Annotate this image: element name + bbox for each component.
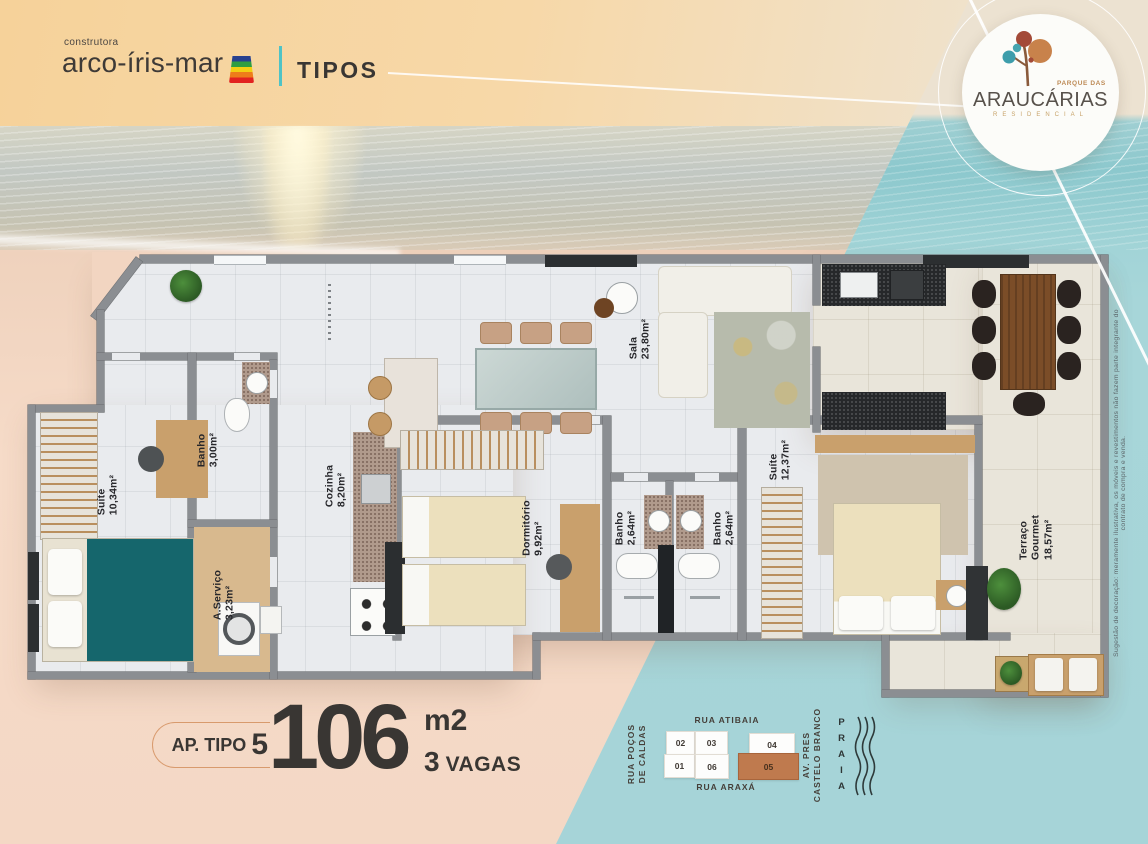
wall: [188, 520, 277, 527]
turntable: [946, 585, 968, 607]
room-area: 9,92m²: [533, 500, 545, 556]
door-opening: [112, 353, 140, 360]
door-opening: [624, 473, 648, 481]
laundry-sink: [260, 606, 282, 634]
room-name: Banho: [196, 433, 208, 467]
room-name: Suíte: [96, 475, 108, 516]
plant: [1000, 661, 1022, 685]
room-name: A.Serviço: [212, 570, 224, 620]
chair: [480, 322, 512, 344]
unit-area-unit: m2: [424, 704, 467, 738]
room-area: 3,23m²: [224, 570, 236, 620]
chair: [972, 316, 996, 344]
chair: [1013, 392, 1045, 416]
chair: [972, 280, 996, 308]
closet: [40, 412, 98, 540]
towel-bar: [690, 596, 720, 599]
poster: Suíte 10,34m² Banho 3,00m² A.Serviço 3,2…: [0, 0, 1148, 844]
room-name: Banho: [614, 511, 626, 545]
room-name: Dormitório: [521, 500, 533, 556]
wall: [1101, 255, 1108, 697]
window-blind: [545, 255, 637, 267]
room-area: 10,34m²: [108, 475, 120, 516]
unit-number: 04: [767, 740, 776, 750]
chair: [972, 352, 996, 380]
single-bed: [402, 496, 526, 558]
desk-chair: [546, 554, 572, 580]
room-label-cozinha: Cozinha 8,20m²: [324, 465, 349, 507]
side-table: [594, 298, 614, 318]
room-area: 2,64m²: [626, 511, 638, 545]
unit-number: 03: [707, 738, 716, 748]
room-area: 23,80m²: [640, 319, 652, 360]
wood-dining-table: [1000, 274, 1056, 390]
floor-plan: Suíte 10,34m² Banho 3,00m² A.Serviço 3,2…: [28, 252, 1108, 702]
chair: [1057, 280, 1081, 308]
parking-label: VAGAS: [446, 753, 522, 777]
waves-icon: [854, 715, 878, 797]
room-name: Sala: [628, 319, 640, 360]
sink: [246, 372, 268, 394]
sideboard: [822, 392, 946, 430]
room-name: Terraço Gourmet: [1017, 500, 1042, 560]
badge-top-label: PARQUE DAS: [1057, 80, 1106, 87]
sink: [680, 510, 702, 532]
closet: [761, 487, 803, 639]
sink: [648, 510, 670, 532]
unit-area-value: 106: [268, 694, 407, 781]
street-label-bottom: RUA ARAXÁ: [666, 782, 786, 793]
parking-info: 3 VAGAS: [424, 746, 521, 778]
sink: [840, 272, 878, 298]
brand-name: arco-íris-mar: [62, 47, 223, 79]
map-unit-05: 05: [738, 753, 799, 780]
wall: [30, 405, 104, 412]
chair: [1057, 352, 1081, 380]
door-opening: [270, 557, 277, 587]
door-opening: [234, 353, 260, 360]
room-area: 8,20m²: [336, 465, 348, 507]
street-label-left: RUA POÇOS DE CALDAS: [626, 704, 648, 804]
chair: [560, 412, 592, 434]
kitchen-sink: [361, 474, 391, 504]
lounge-seat: [1028, 654, 1104, 696]
room-label-suite-1: Suíte 10,34m²: [96, 475, 121, 516]
unit-number: 02: [676, 738, 685, 748]
window-blind: [28, 604, 39, 652]
window: [214, 255, 266, 265]
room-name: Suíte: [768, 440, 780, 481]
wall: [813, 347, 820, 432]
window-blind: [28, 552, 39, 600]
sofa-chaise: [658, 312, 708, 398]
beach-label: PRAIA: [836, 717, 847, 797]
room-area: 12,37m²: [780, 440, 792, 481]
chair: [1057, 316, 1081, 344]
door-opening: [270, 370, 277, 398]
room-area: 18,57m²: [1042, 500, 1054, 560]
room-name: Banho: [712, 511, 724, 545]
room-label-banho-1: Banho 3,00m²: [196, 433, 221, 467]
room-label-dormitorio: Dormitório 9,92m²: [521, 500, 546, 556]
plant: [987, 568, 1021, 610]
wall: [882, 633, 889, 697]
plant: [170, 270, 202, 302]
headboard-shelf: [815, 435, 975, 453]
door-opening: [695, 473, 719, 481]
stool: [368, 376, 392, 400]
window: [454, 255, 506, 265]
map-unit-01: 01: [664, 754, 695, 778]
street-label-top: RUA ATIBAIA: [662, 715, 792, 726]
chair: [560, 322, 592, 344]
unit-number: 05: [764, 762, 773, 772]
street-label-right: AV. PRES CASTELO BRANCO: [801, 695, 823, 815]
room-label-servico: A.Serviço 3,23m²: [212, 570, 237, 620]
toilet: [224, 398, 250, 432]
bathtub: [678, 553, 720, 579]
wall: [738, 416, 746, 640]
room-name: Cozinha: [324, 465, 336, 507]
double-bed: [42, 538, 194, 662]
badge-bottom-label: RESIDENCIAL: [978, 112, 1103, 118]
room-area: 2,64m²: [724, 511, 736, 545]
map-unit-03: 03: [695, 731, 728, 755]
towel-bar: [624, 596, 654, 599]
stool: [368, 412, 392, 436]
unit-type-label: AP. TIPO: [172, 735, 247, 756]
disclaimer-text: Sugestão de decoração: meramente ilustra…: [1113, 302, 1127, 664]
parking-count: 3: [424, 746, 440, 778]
badge-name: ARAUCÁRIAS: [972, 89, 1109, 112]
wall: [813, 255, 820, 305]
single-bed: [402, 564, 526, 626]
bathtub: [616, 553, 658, 579]
room-label-banho-2: Banho 2,64m²: [614, 511, 639, 545]
rug: [714, 312, 810, 428]
wall: [603, 416, 611, 640]
site-map: RUA ATIBAIA RUA POÇOS DE CALDAS RUA ARAX…: [612, 705, 887, 815]
page-title: TIPOS: [297, 57, 379, 84]
wall: [28, 672, 540, 679]
desk-chair: [138, 446, 164, 472]
wardrobe: [400, 430, 544, 470]
map-unit-02: 02: [666, 731, 695, 755]
cabinet: [966, 566, 988, 640]
entry-door-mark: [328, 282, 331, 340]
sofa: [658, 266, 792, 316]
room-label-banho-3: Banho 2,64m²: [712, 511, 737, 545]
grill: [890, 270, 924, 300]
unit-number: 06: [707, 762, 716, 772]
unit-number: 01: [675, 761, 684, 771]
rainbow-icon: [229, 56, 254, 83]
dining-table: [475, 348, 597, 410]
header-divider: [279, 46, 282, 86]
room-label-sala: Sala 23,80m²: [628, 319, 653, 360]
chair: [520, 322, 552, 344]
map-unit-06: 06: [695, 754, 729, 779]
unit-type-number: 5: [251, 728, 268, 762]
double-bed: [833, 503, 941, 635]
araucaria-tree-icon: [990, 26, 1068, 88]
shower-partition: [658, 545, 674, 633]
room-area: 3,00m²: [208, 433, 220, 467]
unit-type-pill: AP. TIPO 5: [152, 722, 270, 768]
room-label-suite-2: Suíte 12,37m²: [768, 440, 793, 481]
room-label-terraco: Terraço Gourmet 18,57m²: [1017, 500, 1054, 560]
wall: [97, 310, 104, 412]
